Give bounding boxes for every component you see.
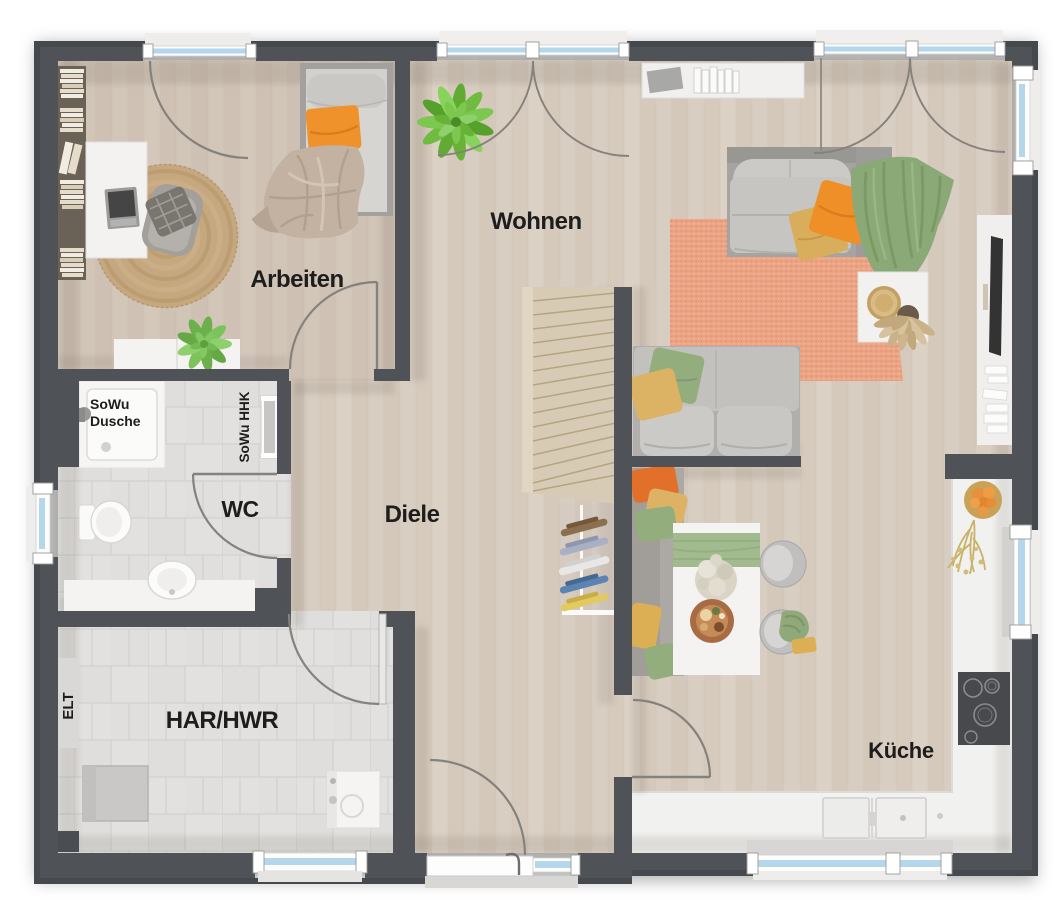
svg-text:WC: WC — [221, 496, 258, 522]
svg-text:SoWu HHK: SoWu HHK — [237, 391, 252, 462]
svg-text:ELT: ELT — [60, 692, 77, 719]
svg-text:SoWu: SoWu — [90, 396, 129, 412]
svg-text:Dusche: Dusche — [90, 413, 141, 429]
svg-text:Wohnen: Wohnen — [490, 208, 581, 235]
svg-text:Diele: Diele — [385, 501, 440, 528]
svg-text:Arbeiten: Arbeiten — [250, 266, 343, 293]
svg-text:HAR/HWR: HAR/HWR — [166, 707, 279, 734]
svg-text:Küche: Küche — [868, 738, 934, 763]
